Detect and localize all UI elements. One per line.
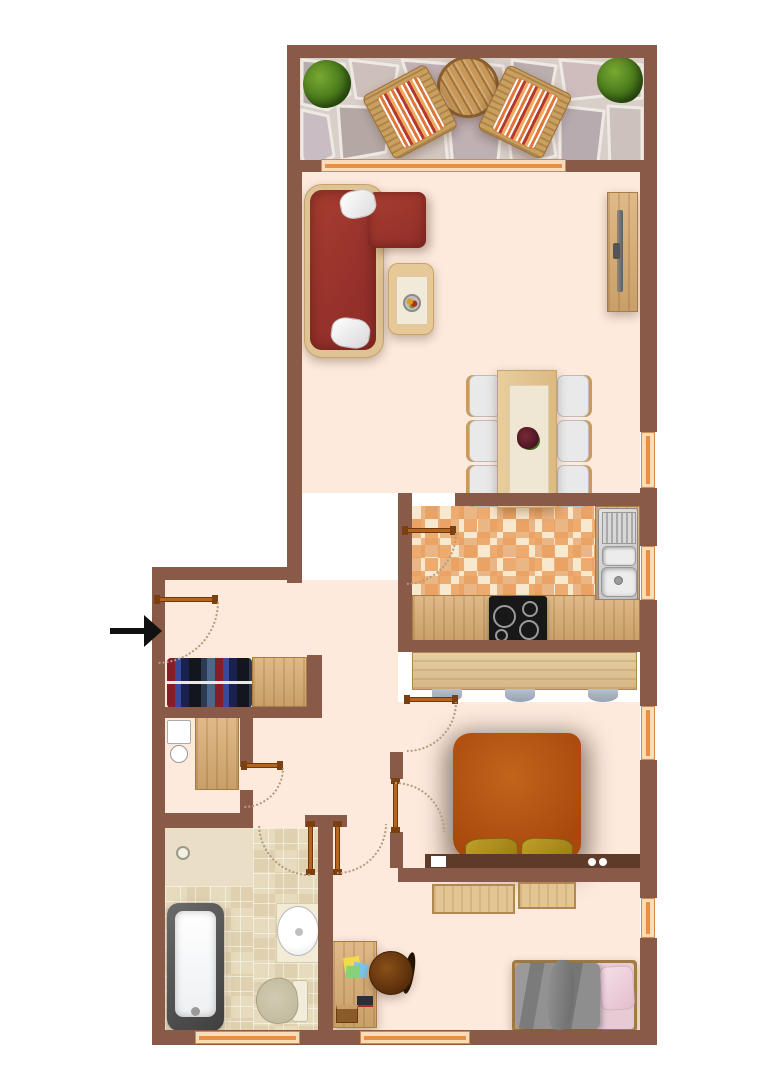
- nightstand-lamp: [431, 856, 446, 867]
- console-knob: [599, 858, 607, 866]
- dining-chair: [557, 375, 589, 417]
- floor-drain: [176, 846, 190, 860]
- wall: [152, 567, 302, 580]
- storage-basin: [170, 745, 188, 763]
- dining-chair: [557, 420, 589, 462]
- headboard-console: [425, 854, 640, 869]
- wall: [287, 45, 300, 172]
- deck-chair-cushion: [491, 76, 560, 151]
- wall: [398, 868, 657, 882]
- window-bathroom: [195, 1031, 300, 1044]
- tv-stand: [613, 243, 620, 259]
- window-balcony: [321, 159, 566, 172]
- wall: [390, 832, 403, 868]
- burner: [522, 601, 538, 617]
- burner: [493, 605, 516, 628]
- wall: [566, 160, 657, 172]
- wall: [152, 813, 253, 828]
- bedroom-sideboard: [432, 884, 515, 914]
- bathroom-door-arc: [258, 824, 310, 876]
- wall: [398, 640, 655, 652]
- bar-stool: [588, 689, 618, 702]
- bathtub-drain: [191, 1007, 200, 1016]
- bathtub: [167, 903, 224, 1031]
- plant-right: [597, 57, 643, 103]
- burner: [519, 620, 539, 640]
- sink-faucet: [614, 576, 623, 585]
- wall: [640, 938, 657, 1045]
- storage-cabinet: [195, 716, 239, 790]
- wall: [287, 160, 321, 172]
- wall: [644, 45, 657, 172]
- wall: [152, 707, 322, 718]
- bar-stool: [505, 689, 535, 702]
- sink-basin-small: [602, 546, 636, 566]
- bedroom-north-door-arc: [407, 702, 457, 752]
- entry-arrow: [110, 628, 144, 634]
- wall: [455, 493, 655, 506]
- notebook: [357, 996, 373, 1007]
- kitchen-sink-unit: [598, 508, 638, 600]
- office-chair: [369, 951, 413, 995]
- bedroom-sideboard: [518, 882, 576, 909]
- window-dining: [641, 432, 655, 488]
- hall-door-arc: [337, 824, 387, 874]
- corner-sofa-arm: [368, 192, 426, 248]
- entry-door-arc: [157, 602, 219, 664]
- wall: [640, 172, 657, 432]
- washbasin: [277, 906, 319, 956]
- washbasin-drain: [295, 928, 303, 936]
- wall: [287, 45, 657, 58]
- single-bed-pillow: [599, 965, 635, 1011]
- wall: [318, 827, 333, 1030]
- storage-door-arc: [244, 768, 284, 808]
- window-office-south: [360, 1031, 470, 1044]
- bar-counter: [412, 652, 637, 690]
- wall: [287, 172, 302, 583]
- console-knob: [588, 858, 596, 866]
- sink-drainboard: [602, 512, 636, 544]
- entry-arrow-head: [144, 615, 162, 647]
- apartment-floor-plan: [0, 0, 763, 1080]
- cooktop: [489, 596, 547, 642]
- wall: [240, 718, 253, 767]
- window-office-east: [641, 898, 655, 938]
- kitchen-door-arc: [405, 533, 457, 585]
- bedroom-west-door-arc: [395, 782, 445, 832]
- coat-rail: [167, 681, 252, 684]
- sticky-note-green: [346, 966, 360, 979]
- wall: [390, 752, 403, 779]
- window-bedroom: [641, 706, 655, 760]
- fruit-bowl: [403, 294, 421, 312]
- wardrobe-cabinet: [252, 657, 307, 707]
- coat-rail-clothes: [167, 658, 252, 708]
- washing-machine: [167, 720, 191, 744]
- wall: [307, 655, 322, 718]
- book: [336, 1005, 358, 1023]
- window-kitchen: [641, 546, 655, 600]
- deck-chair-cushion: [376, 75, 447, 151]
- bathtub-basin: [175, 911, 216, 1017]
- wall: [640, 600, 657, 706]
- table-centerpiece: [517, 427, 539, 449]
